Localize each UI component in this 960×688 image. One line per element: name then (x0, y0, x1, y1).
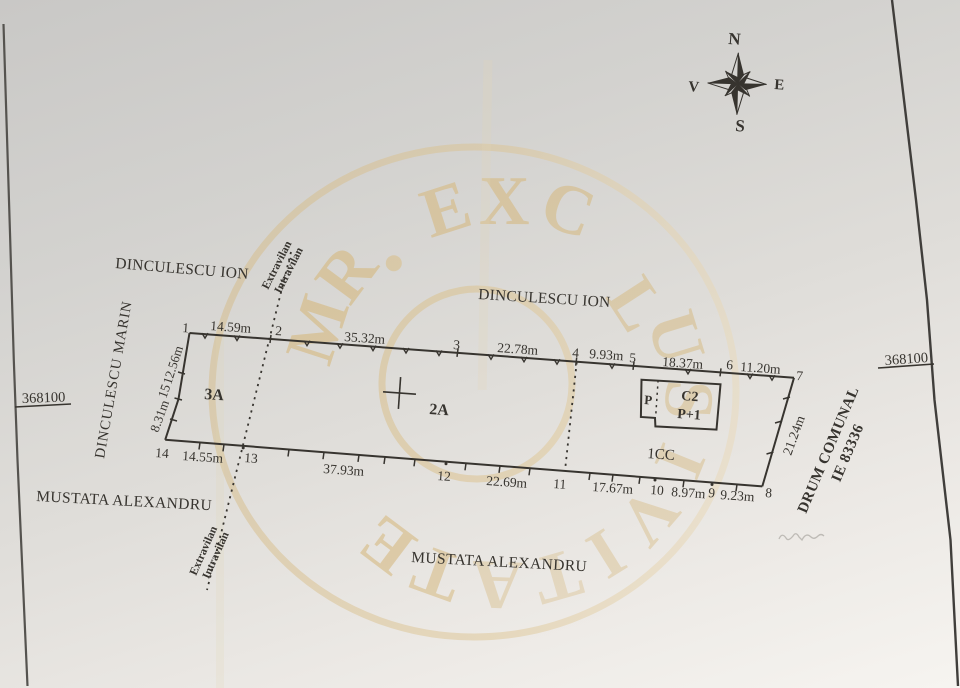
svg-text:7: 7 (796, 368, 804, 383)
svg-text:9.23m: 9.23m (720, 487, 756, 504)
svg-text:2: 2 (275, 323, 283, 338)
svg-text:9: 9 (708, 485, 716, 500)
svg-text:5: 5 (629, 350, 637, 365)
svg-text:8: 8 (765, 485, 773, 500)
svg-text:11.20m: 11.20m (740, 359, 782, 377)
svg-text:E: E (412, 166, 480, 254)
svg-text:4: 4 (572, 345, 580, 360)
svg-text:P+1: P+1 (677, 407, 702, 424)
svg-text:12: 12 (437, 468, 452, 484)
svg-text:18.37m: 18.37m (662, 354, 704, 372)
svg-text:2A: 2A (429, 401, 450, 419)
svg-text:1: 1 (182, 320, 190, 335)
svg-text:14: 14 (155, 445, 170, 461)
svg-text:3: 3 (453, 337, 461, 352)
svg-text:N: N (728, 29, 742, 49)
svg-text:14.55m: 14.55m (182, 448, 224, 466)
svg-text:DINCULESCU ION: DINCULESCU ION (115, 255, 250, 283)
svg-text:E: E (774, 77, 785, 94)
svg-text:22.69m: 22.69m (486, 473, 528, 491)
svg-text:C: C (531, 165, 604, 254)
svg-text:DINCULESCU ION: DINCULESCU ION (478, 286, 611, 311)
svg-text:17.67m: 17.67m (592, 479, 634, 497)
svg-text:13: 13 (244, 450, 259, 466)
svg-text:S: S (735, 116, 746, 136)
svg-text:21.24m: 21.24m (780, 413, 808, 457)
svg-text:3A: 3A (204, 386, 225, 404)
svg-text:C2: C2 (681, 389, 699, 405)
svg-text:T: T (524, 533, 590, 620)
svg-text:8.97m: 8.97m (671, 484, 707, 501)
svg-text:11: 11 (553, 476, 567, 492)
svg-text:MUSTATA ALEXANDRU: MUSTATA ALEXANDRU (36, 488, 213, 514)
svg-text:10: 10 (650, 482, 665, 498)
svg-text:22.78m: 22.78m (497, 340, 539, 358)
svg-text:P: P (644, 392, 653, 408)
svg-text:35.32m: 35.32m (344, 329, 386, 347)
svg-text:DINCULESCU MARIN: DINCULESCU MARIN (92, 300, 136, 460)
svg-text:V: V (688, 79, 700, 96)
svg-text:14.59m: 14.59m (210, 318, 252, 336)
svg-text:6: 6 (726, 357, 734, 372)
svg-text:37.93m: 37.93m (323, 461, 365, 479)
svg-text:1CC: 1CC (647, 446, 676, 464)
svg-text:9.93m: 9.93m (589, 346, 625, 363)
